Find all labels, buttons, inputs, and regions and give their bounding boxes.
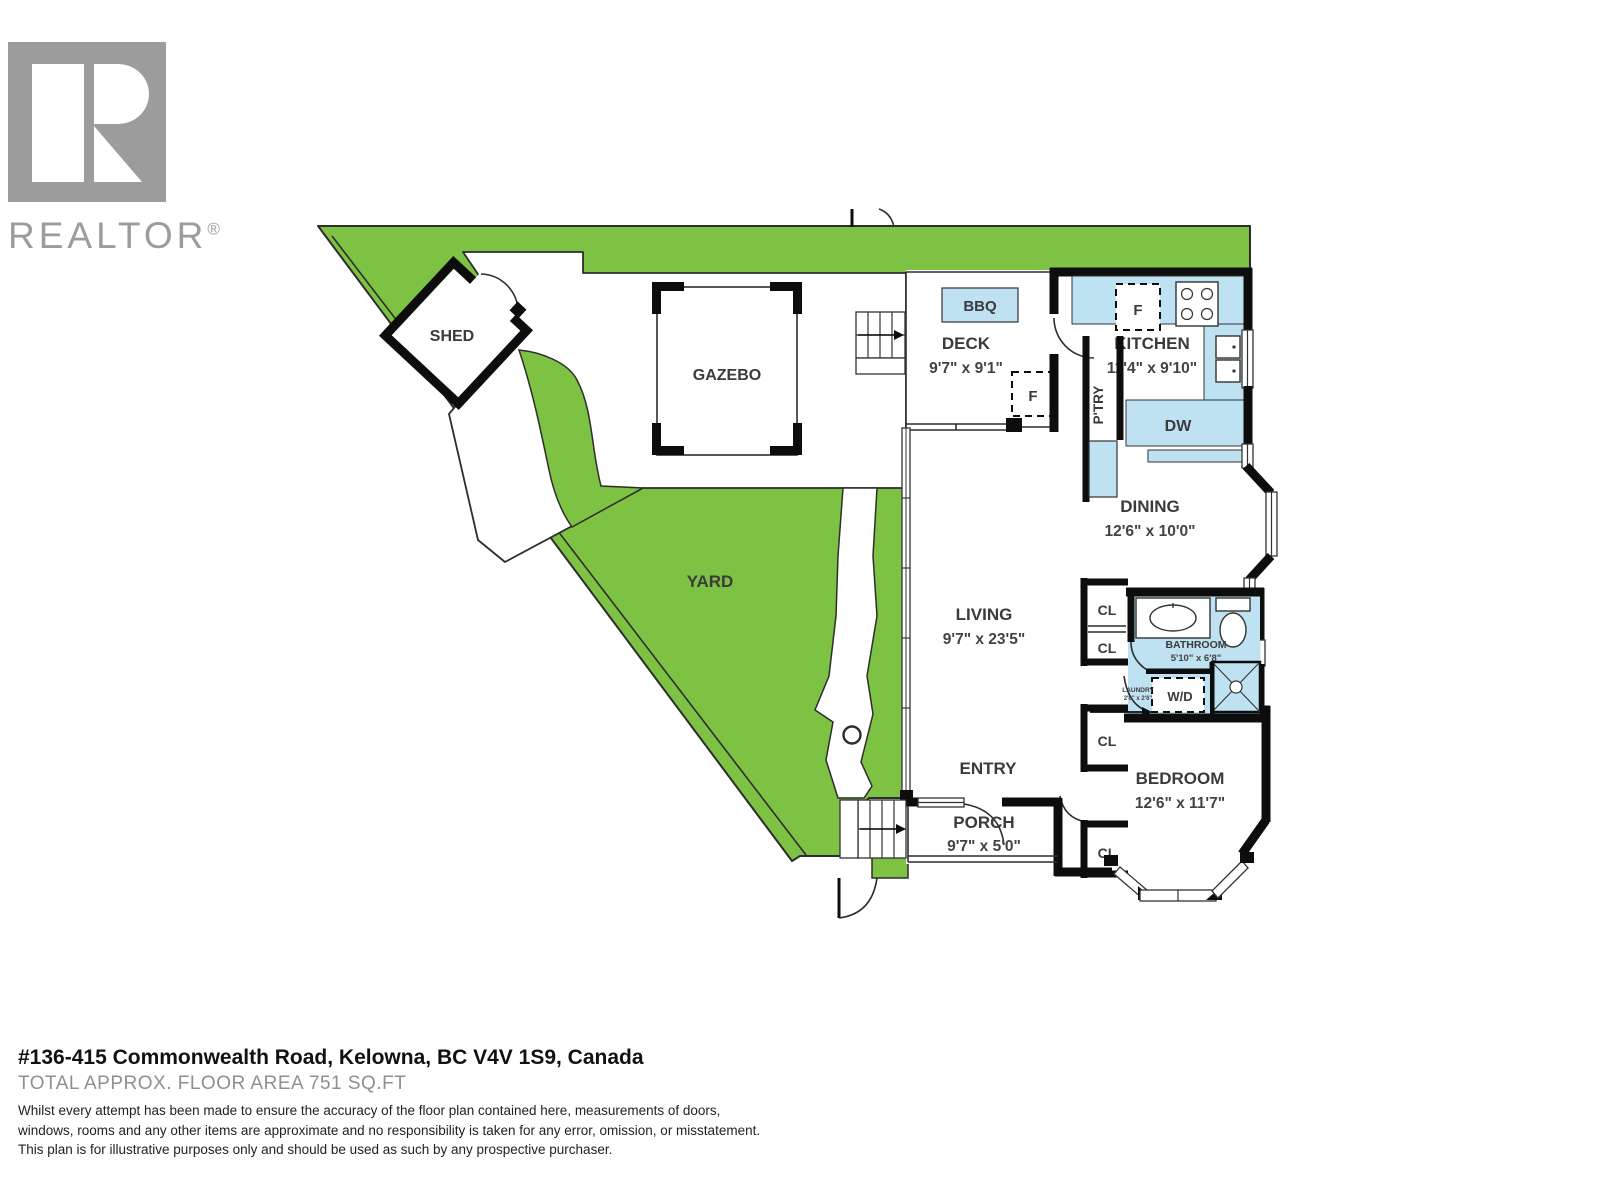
disclaimer-line: This plan is for illustrative purposes o… bbox=[18, 1142, 612, 1157]
window bbox=[918, 798, 964, 807]
bay-window bbox=[1266, 492, 1277, 556]
closet-label: CL bbox=[1098, 602, 1117, 618]
closet-label: CL bbox=[1098, 733, 1117, 749]
top-gate bbox=[852, 209, 894, 227]
porch-dims: 9'7" x 5'0" bbox=[947, 838, 1021, 855]
living-dims: 9'7" x 23'5" bbox=[943, 631, 1025, 648]
deck-stairs-icon bbox=[856, 312, 905, 374]
bedroom-dims: 12'6" x 11'7" bbox=[1135, 795, 1225, 812]
bottom-gate bbox=[839, 878, 877, 918]
floorplan-drawing: YARD SHED GAZEBO bbox=[0, 0, 1600, 1200]
kitchen-label: KITCHEN bbox=[1114, 334, 1190, 353]
washer-dryer-label: W/D bbox=[1167, 689, 1192, 704]
gate-swing-arc bbox=[839, 878, 877, 918]
property-address: #136-415 Commonwealth Road, Kelowna, BC … bbox=[18, 1046, 918, 1070]
window bbox=[1242, 330, 1253, 388]
vanity-sink-icon bbox=[1136, 598, 1210, 638]
living-label: LIVING bbox=[956, 605, 1013, 624]
disclaimer-line: windows, rooms and any other items are a… bbox=[18, 1123, 760, 1138]
counter-edge bbox=[1148, 450, 1248, 462]
porch-label: PORCH bbox=[953, 813, 1014, 832]
gate-swing-arc bbox=[879, 209, 894, 227]
yard-label: YARD bbox=[687, 572, 734, 591]
bbq-label: BBQ bbox=[963, 298, 997, 315]
pantry-shelf bbox=[1089, 441, 1117, 497]
footer: #136-415 Commonwealth Road, Kelowna, BC … bbox=[18, 1046, 918, 1160]
closet-label: CL bbox=[1098, 640, 1117, 656]
freezer-label: F bbox=[1028, 388, 1037, 405]
deck-label: DECK bbox=[942, 334, 991, 353]
stove-icon bbox=[1176, 282, 1218, 326]
window bbox=[1242, 444, 1253, 468]
bedroom-label: BEDROOM bbox=[1136, 769, 1225, 788]
house: F DW KITCHEN 11'4" x 9'10" BBQ DECK 9'7"… bbox=[840, 268, 1277, 901]
fridge-label: F bbox=[1133, 302, 1142, 319]
bathroom-label: BATHROOM bbox=[1165, 639, 1226, 651]
wall-post bbox=[1006, 418, 1022, 432]
laundry-label: LAUNDRY bbox=[1122, 687, 1154, 694]
shower-icon bbox=[1212, 662, 1260, 712]
yard-post-icon bbox=[844, 727, 861, 744]
shed-label: SHED bbox=[430, 328, 474, 345]
floorplan-page: REALTOR® YARD bbox=[0, 0, 1600, 1200]
gazebo: GAZEBO bbox=[652, 282, 802, 455]
disclaimer-line: Whilst every attempt has been made to en… bbox=[18, 1103, 720, 1118]
laundry-dims: 2'6" x 2'6" bbox=[1124, 696, 1153, 702]
gazebo-label: GAZEBO bbox=[693, 367, 761, 384]
entry-label: ENTRY bbox=[960, 759, 1018, 778]
disclaimer: Whilst every attempt has been made to en… bbox=[18, 1101, 918, 1160]
floor-area-total: TOTAL APPROX. FLOOR AREA 751 SQ.FT bbox=[18, 1073, 918, 1095]
deck-dims: 9'7" x 9'1" bbox=[929, 360, 1003, 377]
porch-stairs-icon bbox=[840, 800, 906, 858]
dining-dims: 12'6" x 10'0" bbox=[1104, 523, 1195, 540]
dining-label: DINING bbox=[1120, 497, 1180, 516]
dishwasher-label: DW bbox=[1165, 418, 1193, 435]
pantry-label: P'TRY bbox=[1091, 386, 1106, 425]
